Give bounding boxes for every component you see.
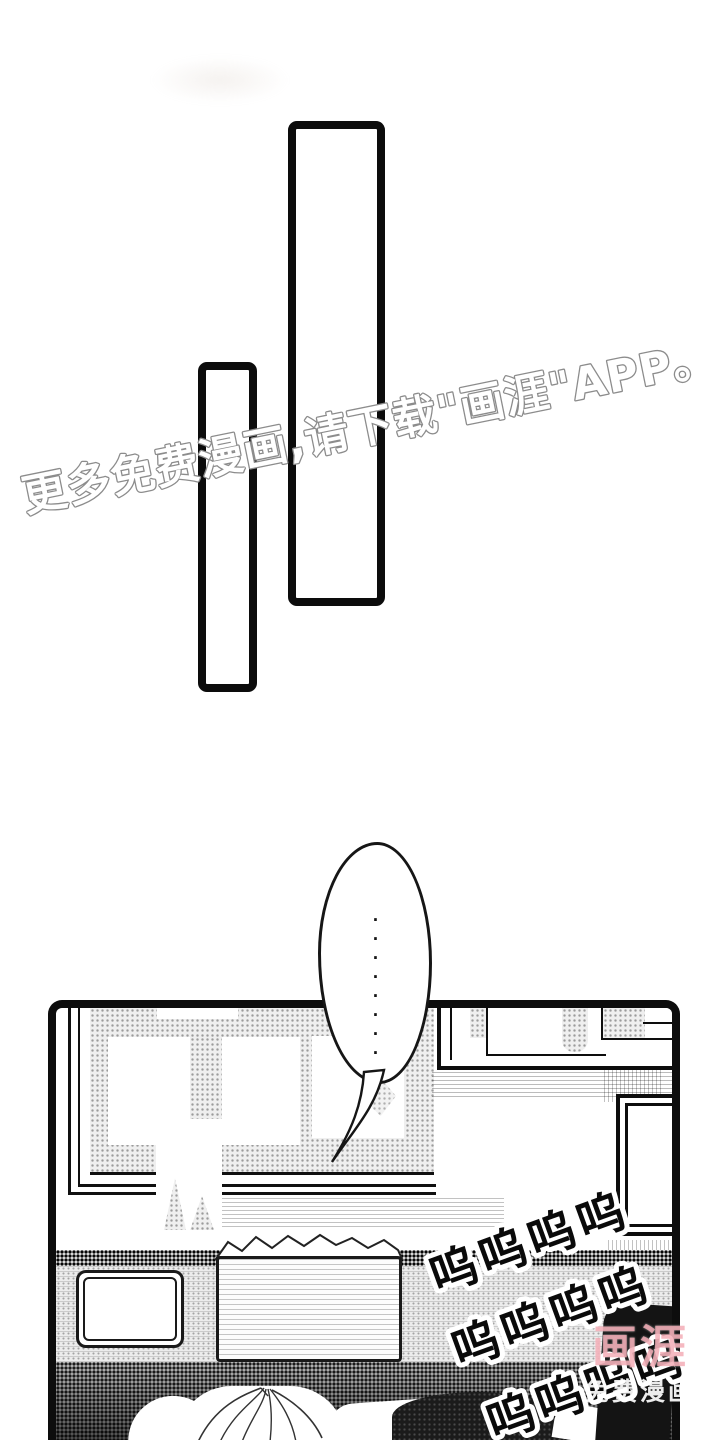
curtain-gap [190,1037,222,1119]
window-frame-line-bottom3 [68,1192,436,1195]
picture-frame-right [616,1094,680,1236]
hair-strands [176,1386,346,1440]
picture-frame-inner [625,1103,680,1227]
strip-line-h2 [603,1038,672,1040]
window-frame-line-left-inner [78,1008,80,1186]
faint-ink-smudge [150,56,290,104]
corner-logo-subtitle: 免费漫画 [560,1377,720,1407]
photo-frame-on-shelf [76,1270,184,1348]
window-frame-line-bottom2 [78,1184,436,1187]
strip-line-v3 [486,1008,488,1056]
strip-shadow-blob [562,1008,588,1052]
photo-frame-inner [83,1277,177,1341]
speech-bubble-ellipsis: ········· [368,911,383,1082]
strip-halftone2 [603,1008,645,1038]
dark-haired-head [392,1392,564,1440]
blonde-head [176,1386,346,1440]
strip-halftone1 [470,1008,486,1038]
strip-line-h1 [486,1054,606,1056]
window-frame-line-left-outer [68,1008,71,1194]
strip-line-h3 [643,1022,672,1024]
window-frame-line-bottom1 [90,1172,434,1175]
strip-line-v1 [437,1008,441,1070]
tissue-box [216,1256,402,1362]
empty-panel-small [198,362,257,692]
window-top-notch [157,1008,238,1019]
strip-line-v2 [450,1008,452,1060]
wall-streaks-under-window [218,1198,504,1230]
curtain-fold-shadow1 [164,1178,186,1230]
empty-panel-tall [288,121,385,606]
corner-logo-title: 画涯 [560,1322,720,1373]
corner-logo: 画涯 免费漫画 [560,1322,720,1407]
curtain-tail [156,1140,222,1236]
curtain-fold-shadow2 [190,1196,214,1230]
speech-bubble-tail [326,1066,398,1166]
manga-page: 更多免费漫画,请下载"画涯"APP。 [0,0,720,1440]
top-right-window [437,1008,672,1070]
